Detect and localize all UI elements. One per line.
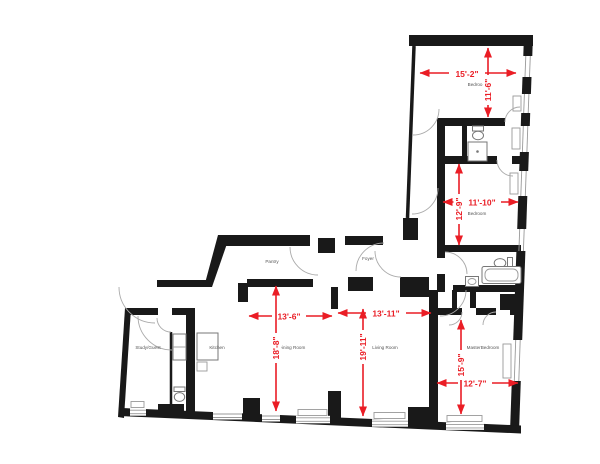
- bathtub: [482, 267, 521, 284]
- toilet-study-bath: [174, 387, 185, 401]
- svg-text:13'-11": 13'-11": [372, 308, 399, 318]
- toilet-top-bath: [473, 126, 484, 140]
- fixtures: [173, 126, 521, 401]
- svg-text:11'-6": 11'-6": [483, 79, 493, 102]
- interior-walls: [171, 118, 523, 422]
- room-label-pantry: Pantry: [265, 259, 279, 264]
- dimension-bedroom-middle-depth: 12'-9": [454, 164, 465, 245]
- svg-text:12'-9": 12'-9": [454, 197, 464, 220]
- svg-text:19'-11": 19'-11": [358, 333, 368, 360]
- svg-text:13'-6": 13'-6": [277, 311, 300, 321]
- svg-text:12'-7": 12'-7": [463, 378, 486, 388]
- dimension-dining-room-width: 13'-6": [249, 311, 332, 322]
- room-label-foyer: Foyer: [362, 256, 374, 261]
- room-label-study-guest: Study/Guest: [135, 345, 161, 350]
- room-label-dining-room: Dining Room: [279, 345, 306, 350]
- dimension-dining-room-depth: 18'-8": [271, 286, 282, 411]
- svg-text:11'-10": 11'-10": [468, 197, 495, 207]
- svg-text:15'-9": 15'-9": [456, 353, 466, 376]
- room-label-living-room: Living Room: [372, 345, 398, 350]
- exterior-walls: [118, 35, 533, 434]
- dimension-bedroom-top-depth: 11'-6": [483, 48, 494, 117]
- dimension-living-room-width: 13'-11": [338, 308, 431, 319]
- room-label-kitchen: Kitchen: [209, 345, 225, 350]
- floor-plan: Bedroom Bedroom MasterBedroom Pantry Foy…: [0, 0, 600, 464]
- svg-text:18'-8": 18'-8": [271, 336, 281, 359]
- dimension-master-bedroom-depth: 15'-9": [456, 320, 467, 414]
- shower-top-bath: [468, 142, 487, 161]
- floor-plan-drawing: Bedroom Bedroom MasterBedroom Pantry Foy…: [0, 0, 600, 464]
- dimension-living-room-depth: 19'-11": [358, 309, 369, 416]
- room-label-master-bedroom: MasterBedroom: [467, 345, 500, 350]
- shower-study-bath: [173, 334, 186, 360]
- dimensions: 15'-2" 11'-10" 13'-6" 13'-11" 12'-7": [249, 48, 518, 416]
- kitchen-counter: [197, 333, 218, 371]
- sink: [466, 277, 479, 287]
- room-label-bedroom-middle: Bedroom: [468, 211, 487, 216]
- svg-text:15'-2": 15'-2": [455, 69, 478, 79]
- dimension-master-bedroom-width: 12'-7": [437, 378, 518, 389]
- dimension-bedroom-top-width: 15'-2": [420, 68, 516, 79]
